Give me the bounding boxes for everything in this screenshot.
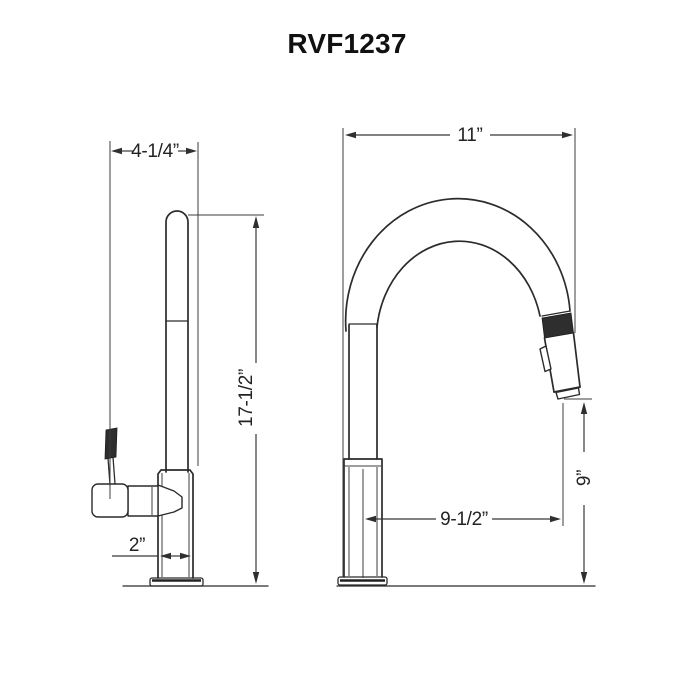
spray-head-nozzle <box>556 388 580 399</box>
spray-head-clip <box>540 346 551 372</box>
dim-side-overall-height: 17-1/2” <box>188 215 264 584</box>
spray-head <box>540 311 580 399</box>
front-neck-outline <box>349 325 377 459</box>
dim-front-spout-reach: 9-1/2” <box>363 403 563 578</box>
side-handle-hub <box>128 486 158 516</box>
dim-label-spray-clearance: 9” <box>574 470 595 486</box>
arrowhead-right <box>186 148 197 154</box>
dim-side-base-width: 2” <box>112 535 191 559</box>
dim-label-top-width: 4-1/4” <box>131 141 179 162</box>
side-view: 4-1/4” 17-1/2” 2” <box>92 141 268 586</box>
dim-label-base-width: 2” <box>129 535 145 556</box>
side-handle-grip <box>105 428 117 459</box>
dim-front-spray-clearance: 9” <box>564 399 595 584</box>
arrowhead-right <box>562 132 573 138</box>
front-view: 11” 9-1/2” 9” <box>337 125 595 586</box>
dim-label-overall-width: 11” <box>457 125 482 146</box>
spray-head-grip-band <box>542 313 574 338</box>
arrowhead-left <box>345 132 356 138</box>
side-body-outline <box>158 470 193 578</box>
side-handle-cone <box>158 485 182 516</box>
side-handle-lever <box>108 457 115 485</box>
arrowhead-left <box>111 148 122 154</box>
technical-drawing: RVF1237 4-1/4” <box>0 0 700 700</box>
side-spout-outline <box>166 211 188 472</box>
front-gooseneck-inner <box>377 241 540 327</box>
arrowhead-up <box>253 216 259 228</box>
spec-sheet: RVF1237 4-1/4” <box>0 0 700 700</box>
dim-label-overall-height: 17-1/2” <box>236 369 257 427</box>
arrowhead-up <box>581 402 587 414</box>
dim-side-top-width: 4-1/4” <box>110 141 198 499</box>
arrowhead-down <box>581 572 587 584</box>
dim-label-spout-reach: 9-1/2” <box>440 509 488 530</box>
arrowhead-left <box>365 516 376 522</box>
arrowhead-right <box>550 516 561 522</box>
arrowhead-down <box>253 572 259 584</box>
page-title: RVF1237 <box>287 28 406 59</box>
